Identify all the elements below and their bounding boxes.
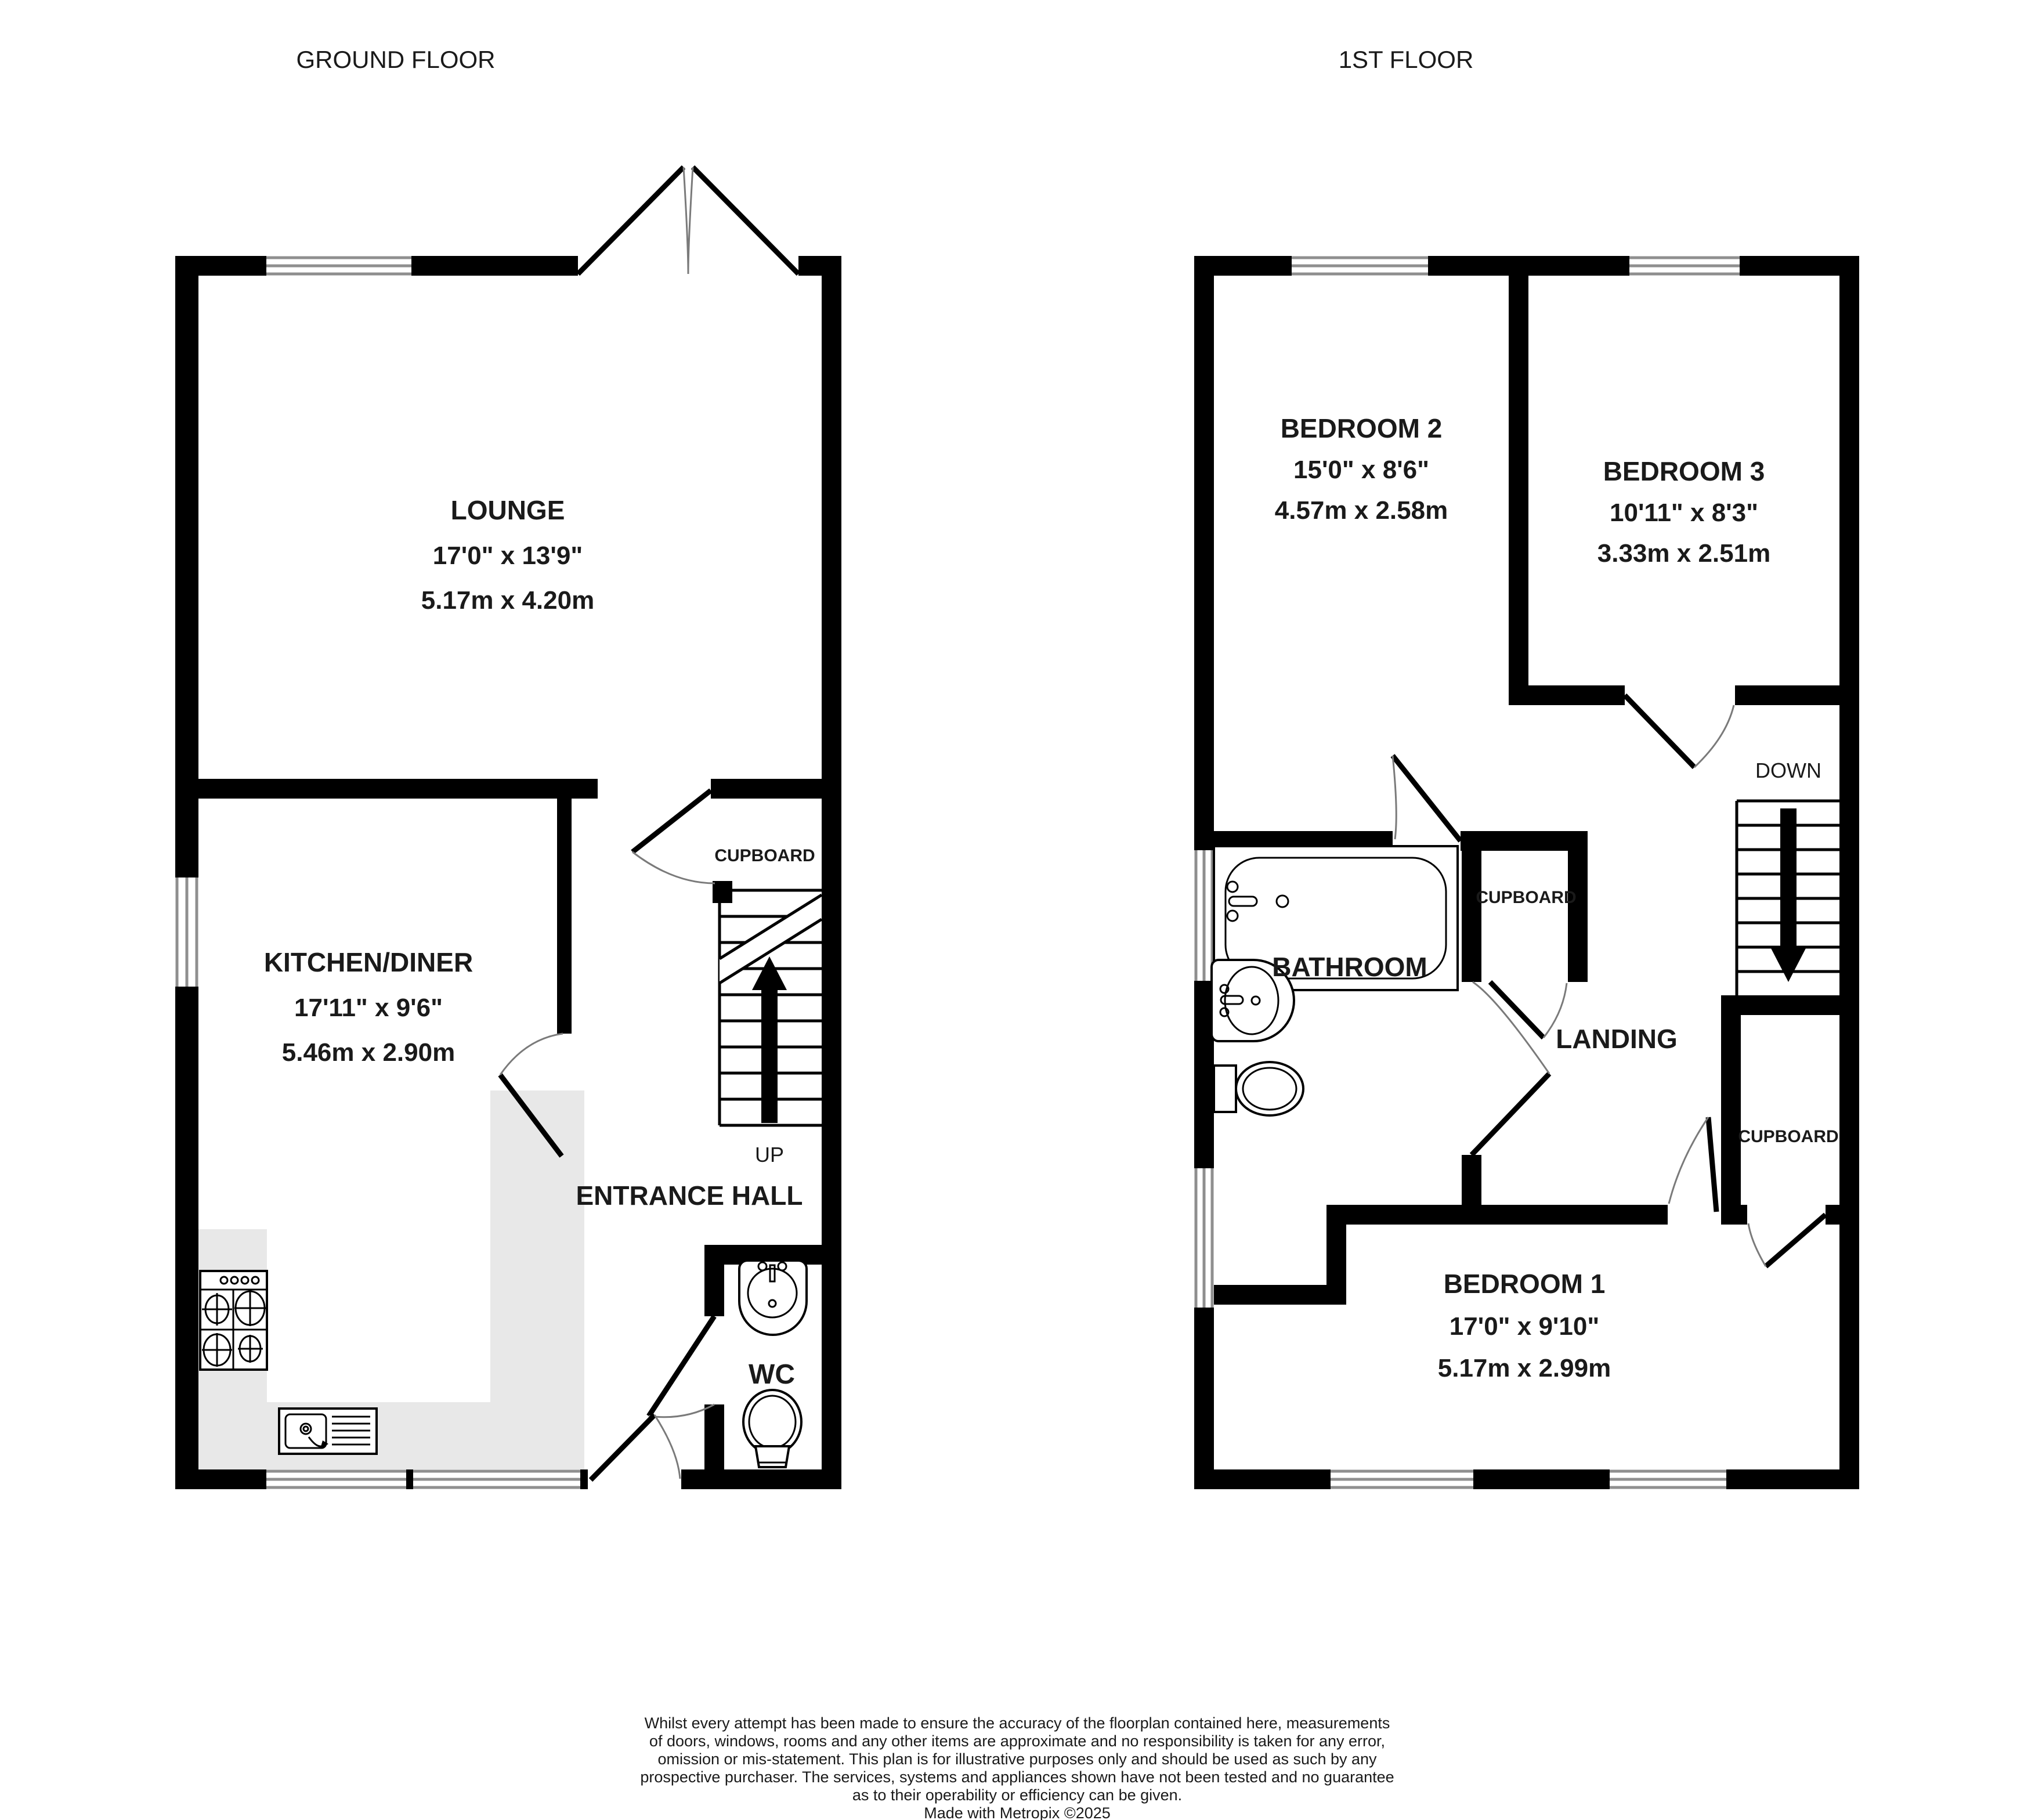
toilet-icon — [743, 1390, 801, 1467]
ground-floor-title: GROUND FLOOR — [296, 46, 495, 73]
floorplan-canvas: GROUND FLOOR 1ST FLOOR — [0, 0, 2035, 1820]
staircase-first — [1737, 801, 1839, 995]
cupboard-br-bottom-right — [1826, 1205, 1859, 1225]
kitchen-dims-metric: 5.46m x 2.90m — [282, 1038, 455, 1067]
bedroom1-bottom-window-2 — [1610, 1469, 1726, 1489]
kitchen-hall-stub-wall — [557, 799, 572, 1034]
bathroom-label: BATHROOM — [1272, 952, 1427, 982]
bedroom1-bottom-window-1 — [1331, 1469, 1473, 1489]
disclaimer-line-5: as to their operability or efficiency ca… — [852, 1786, 1182, 1804]
bedroom2-top-window — [1292, 256, 1428, 276]
bedroom1-dims-metric: 5.17m x 2.99m — [1438, 1354, 1611, 1382]
kitchen-bottom-window-1 — [266, 1469, 406, 1489]
lounge-top-window — [266, 256, 411, 276]
bedroom1-top-wall — [1346, 1205, 1668, 1225]
stove-hob-icon — [200, 1271, 267, 1370]
bathroom-bottom-wall — [1194, 1285, 1346, 1305]
bedroom1-label: BEDROOM 1 — [1444, 1269, 1606, 1299]
ground-wall-right — [822, 256, 841, 1489]
lounge-dims-metric: 5.17m x 4.20m — [421, 586, 594, 615]
wash-basin-icon — [739, 1261, 807, 1335]
down-label: DOWN — [1755, 759, 1821, 782]
entrance-hall-label: ENTRANCE HALL — [576, 1180, 803, 1211]
bedroom3-dims-metric: 3.33m x 2.51m — [1597, 539, 1770, 568]
kitchen-left-window — [175, 878, 198, 987]
kitchen-dims-imperial: 17'11" x 9'6" — [294, 994, 443, 1022]
ground-wall-top-seg3 — [798, 256, 841, 276]
bedroom1-left-window — [1194, 1168, 1214, 1308]
ground-wall-bottom-seg3 — [580, 1469, 588, 1489]
ground-wall-bottom-seg1 — [175, 1469, 266, 1489]
disclaimer-line-1: Whilst every attempt has been made to en… — [645, 1714, 1390, 1732]
staircase-ground — [720, 890, 822, 1125]
first-wall-left-seg3 — [1194, 1308, 1214, 1489]
stairs-down-arrow-icon — [1771, 808, 1806, 982]
ground-wall-bottom-seg2 — [406, 1469, 413, 1489]
wc-door — [649, 1316, 714, 1417]
cupboard-br-bottom-left — [1721, 1205, 1747, 1225]
bedroom3-label: BEDROOM 3 — [1603, 456, 1765, 486]
bedroom2-bedroom3-divider — [1509, 256, 1528, 705]
lounge-kitchen-divider-right — [711, 779, 841, 799]
toilet-icon — [1214, 1062, 1303, 1115]
cupboard-br-door — [1748, 1215, 1826, 1266]
lounge-label: LOUNGE — [451, 495, 565, 525]
lounge-dims-imperial: 17'0" x 13'9" — [433, 541, 583, 570]
bedroom2-dims-metric: 4.57m x 2.58m — [1275, 496, 1448, 525]
first-wall-bottom-seg3 — [1726, 1469, 1859, 1489]
first-wall-right — [1839, 256, 1859, 1489]
bedroom3-bottom-wall-left — [1509, 685, 1625, 705]
bedroom3-bottom-wall-right — [1735, 685, 1859, 705]
first-wall-left-seg1 — [1194, 256, 1214, 850]
bedroom3-top-window — [1629, 256, 1740, 276]
ground-floor-plan — [175, 167, 841, 1489]
understairs-wall — [1721, 995, 1859, 1015]
ground-wall-bottom-seg4 — [681, 1469, 841, 1489]
bedroom2-door — [1393, 756, 1461, 841]
cupboard-mid-right-wall — [1568, 851, 1588, 982]
french-doors-icon — [578, 167, 798, 274]
first-wall-bottom-seg1 — [1194, 1469, 1331, 1489]
landing-label: LANDING — [1556, 1024, 1678, 1054]
first-wall-top-seg2 — [1428, 256, 1629, 276]
bedroom1-door — [1669, 1117, 1716, 1212]
kitchen-bottom-window-2 — [413, 1469, 580, 1489]
hall-stub-post — [713, 881, 732, 903]
wc-left-wall-lower — [704, 1404, 724, 1469]
kitchen-sink-icon — [279, 1409, 377, 1454]
ground-wall-left — [175, 256, 198, 1489]
kitchen-label: KITCHEN/DINER — [264, 947, 473, 977]
cupboard-br-left-wall — [1721, 1015, 1741, 1225]
bedroom3-door — [1625, 695, 1734, 767]
first-wall-bottom-seg2 — [1473, 1469, 1610, 1489]
bedroom2-label: BEDROOM 2 — [1281, 413, 1443, 443]
bathroom-bedroom1-jog-wall — [1326, 1205, 1346, 1305]
front-door — [591, 1415, 680, 1480]
disclaimer-line-2: of doors, windows, rooms and any other i… — [649, 1732, 1385, 1750]
bedroom1-dims-imperial: 17'0" x 9'10" — [1450, 1312, 1599, 1341]
ground-wall-top-seg2 — [411, 256, 578, 276]
bathroom-door — [1472, 982, 1549, 1155]
bathroom-left-window — [1194, 850, 1214, 981]
ground-wall-top-seg1 — [175, 256, 266, 276]
disclaimer-line-6: Made with Metropix ©2025 — [924, 1804, 1111, 1820]
first-wall-top-seg1 — [1194, 256, 1292, 276]
first-wall-top-seg3 — [1740, 256, 1859, 276]
wc-left-wall-upper — [704, 1265, 724, 1316]
disclaimer: Whilst every attempt has been made to en… — [640, 1714, 1394, 1820]
first-floor-title: 1ST FLOOR — [1339, 46, 1474, 73]
bedroom3-dims-imperial: 10'11" x 8'3" — [1610, 499, 1758, 527]
cupboard-br-label: CUPBOARD — [1738, 1127, 1838, 1146]
up-label: UP — [755, 1143, 784, 1167]
wc-label: WC — [749, 1359, 795, 1390]
cupboard-mid-label: CUPBOARD — [1476, 888, 1576, 907]
cupboard-ground-label: CUPBOARD — [714, 846, 815, 865]
lounge-kitchen-divider-left — [175, 779, 598, 799]
bedroom2-dims-imperial: 15'0" x 8'6" — [1293, 456, 1429, 484]
lounge-door — [632, 790, 715, 883]
disclaimer-line-3: omission or mis-statement. This plan is … — [657, 1750, 1377, 1768]
disclaimer-line-4: prospective purchaser. The services, sys… — [640, 1768, 1394, 1786]
